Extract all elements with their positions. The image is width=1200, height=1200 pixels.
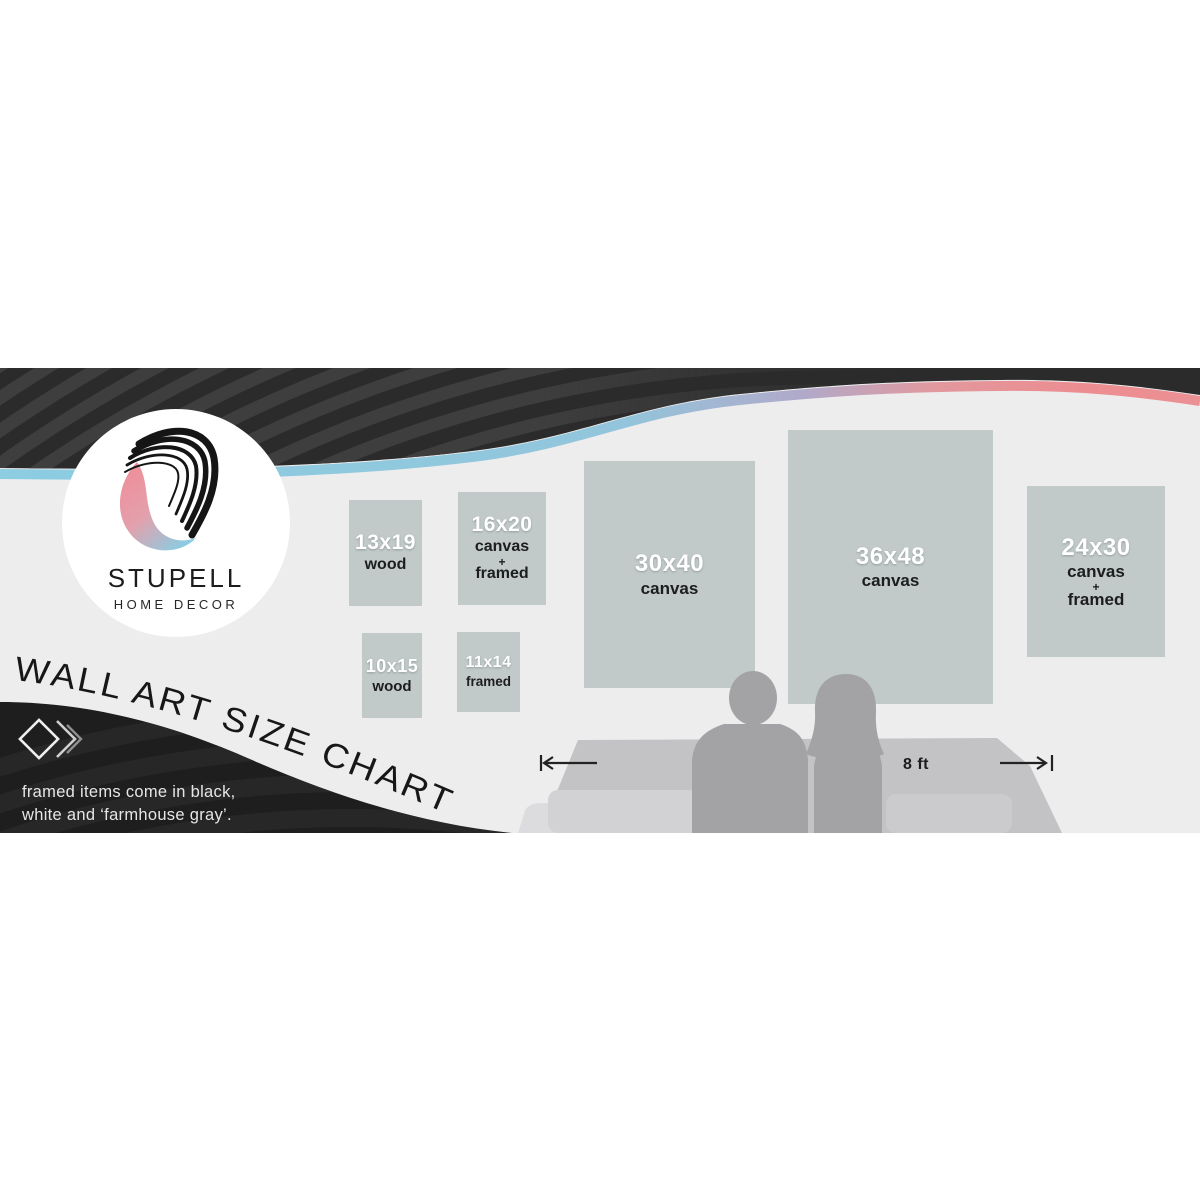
- size-label: 36x48: [856, 544, 925, 569]
- note-line-1: framed items come in black,: [22, 783, 236, 801]
- size-label: 24x30: [1061, 535, 1130, 560]
- size-label: 10x15: [366, 657, 419, 676]
- material-label: framed: [1068, 591, 1125, 609]
- note-line-2: white and ‘farmhouse gray’.: [21, 806, 232, 824]
- material-label: wood: [372, 679, 411, 695]
- size-label: 30x40: [635, 551, 704, 576]
- brand-name: STUPELL: [108, 563, 245, 593]
- size-label: 16x20: [472, 514, 533, 536]
- size-box-16x20-canvas-framed: 16x20 canvas + framed: [458, 492, 546, 605]
- size-chart-banner: STUPELL HOME DECOR WALL ART SIZE CHART f…: [0, 368, 1200, 833]
- material-label: framed: [475, 566, 528, 583]
- size-box-30x40-canvas: 30x40 canvas: [584, 461, 755, 688]
- material-label: canvas: [862, 572, 920, 590]
- size-box-10x15-wood: 10x15 wood: [362, 633, 422, 718]
- size-box-36x48-canvas: 36x48 canvas: [788, 430, 993, 704]
- brand-tagline: HOME DECOR: [114, 597, 239, 612]
- size-box-11x14-framed: 11x14 framed: [457, 632, 520, 712]
- brand-logo: STUPELL HOME DECOR: [62, 409, 290, 637]
- material-label: canvas: [1067, 563, 1125, 581]
- material-label: canvas: [475, 539, 529, 556]
- size-box-24x30-canvas-framed: 24x30 canvas + framed: [1027, 486, 1165, 657]
- size-box-13x19-wood: 13x19 wood: [349, 500, 422, 606]
- size-label: 13x19: [355, 532, 416, 554]
- material-label: canvas: [641, 580, 699, 598]
- material-label: framed: [466, 675, 511, 689]
- size-label: 11x14: [465, 655, 511, 672]
- product-image: STUPELL HOME DECOR WALL ART SIZE CHART f…: [0, 0, 1200, 1200]
- material-label: wood: [365, 557, 407, 574]
